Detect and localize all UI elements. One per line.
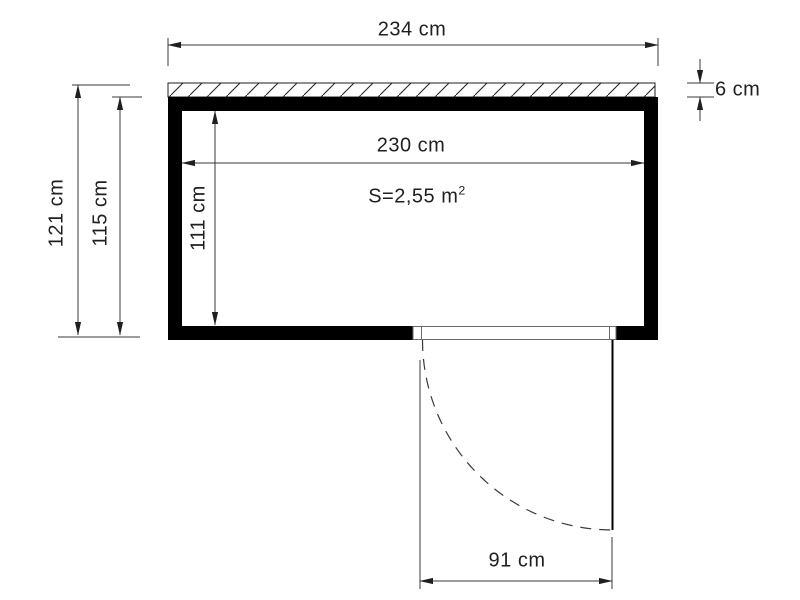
area-label: S=2,55 m2 — [368, 184, 466, 209]
area-label-text: S=2,55 m — [368, 185, 458, 207]
wall-bottom-left — [168, 326, 413, 340]
door-swing-arc — [423, 340, 613, 530]
wall-bottom-right — [616, 326, 658, 340]
door — [413, 327, 616, 531]
dim-outer-width — [168, 38, 658, 66]
roof-overhang-label: 6 cm — [715, 79, 760, 102]
area-label-superscript: 2 — [458, 184, 465, 198]
walls — [168, 97, 658, 340]
outer-depth-label: 121 cm — [46, 179, 69, 248]
floor-plan-canvas: 234 cm 230 cm S=2,55 m2 121 cm 115 cm 11… — [0, 0, 800, 600]
outer-width-label: 234 cm — [378, 19, 447, 42]
dim-roof-overhang — [687, 59, 714, 121]
inner-depth-label: 111 cm — [188, 185, 211, 251]
door-frame — [413, 327, 616, 340]
inner-width-label: 230 cm — [377, 135, 446, 158]
floor-plan-drawing — [0, 0, 800, 600]
wall-top — [168, 97, 658, 111]
wall-left — [168, 97, 182, 340]
wall-right — [644, 97, 658, 340]
body-depth-label: 115 cm — [90, 179, 113, 246]
roof-edge-hatch — [168, 83, 655, 97]
dim-body-depth — [112, 97, 142, 335]
door-width-label: 91 cm — [489, 550, 546, 573]
